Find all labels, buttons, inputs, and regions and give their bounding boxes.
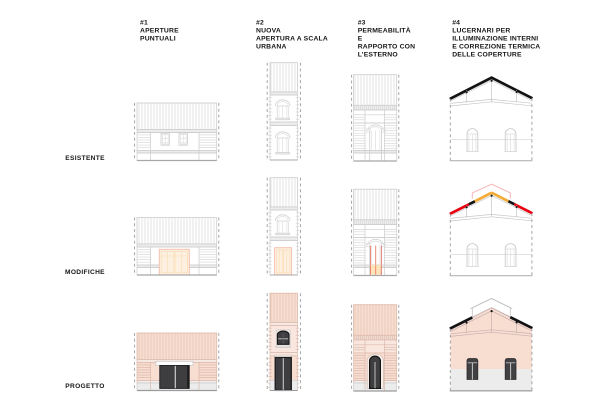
svg-text:PROGETTO: PROGETTO — [65, 383, 104, 390]
svg-text:MODIFICHE: MODIFICHE — [65, 269, 105, 276]
svg-text:ESISTENTE: ESISTENTE — [65, 155, 105, 162]
